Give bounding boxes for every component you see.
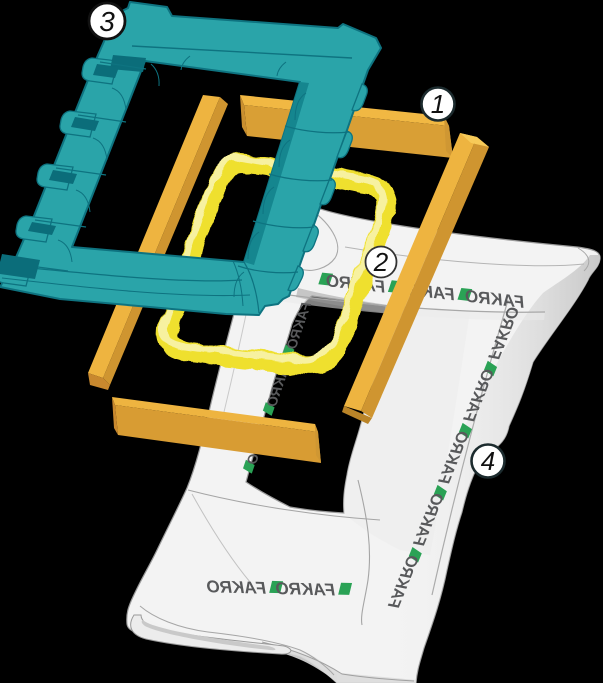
svg-text:1: 1 xyxy=(431,89,445,119)
svg-text:FAKRO: FAKRO xyxy=(206,577,266,598)
svg-text:FAKRO: FAKRO xyxy=(275,579,335,600)
svg-text:3: 3 xyxy=(99,6,115,37)
svg-text:4: 4 xyxy=(481,446,495,476)
svg-text:2: 2 xyxy=(373,247,389,277)
